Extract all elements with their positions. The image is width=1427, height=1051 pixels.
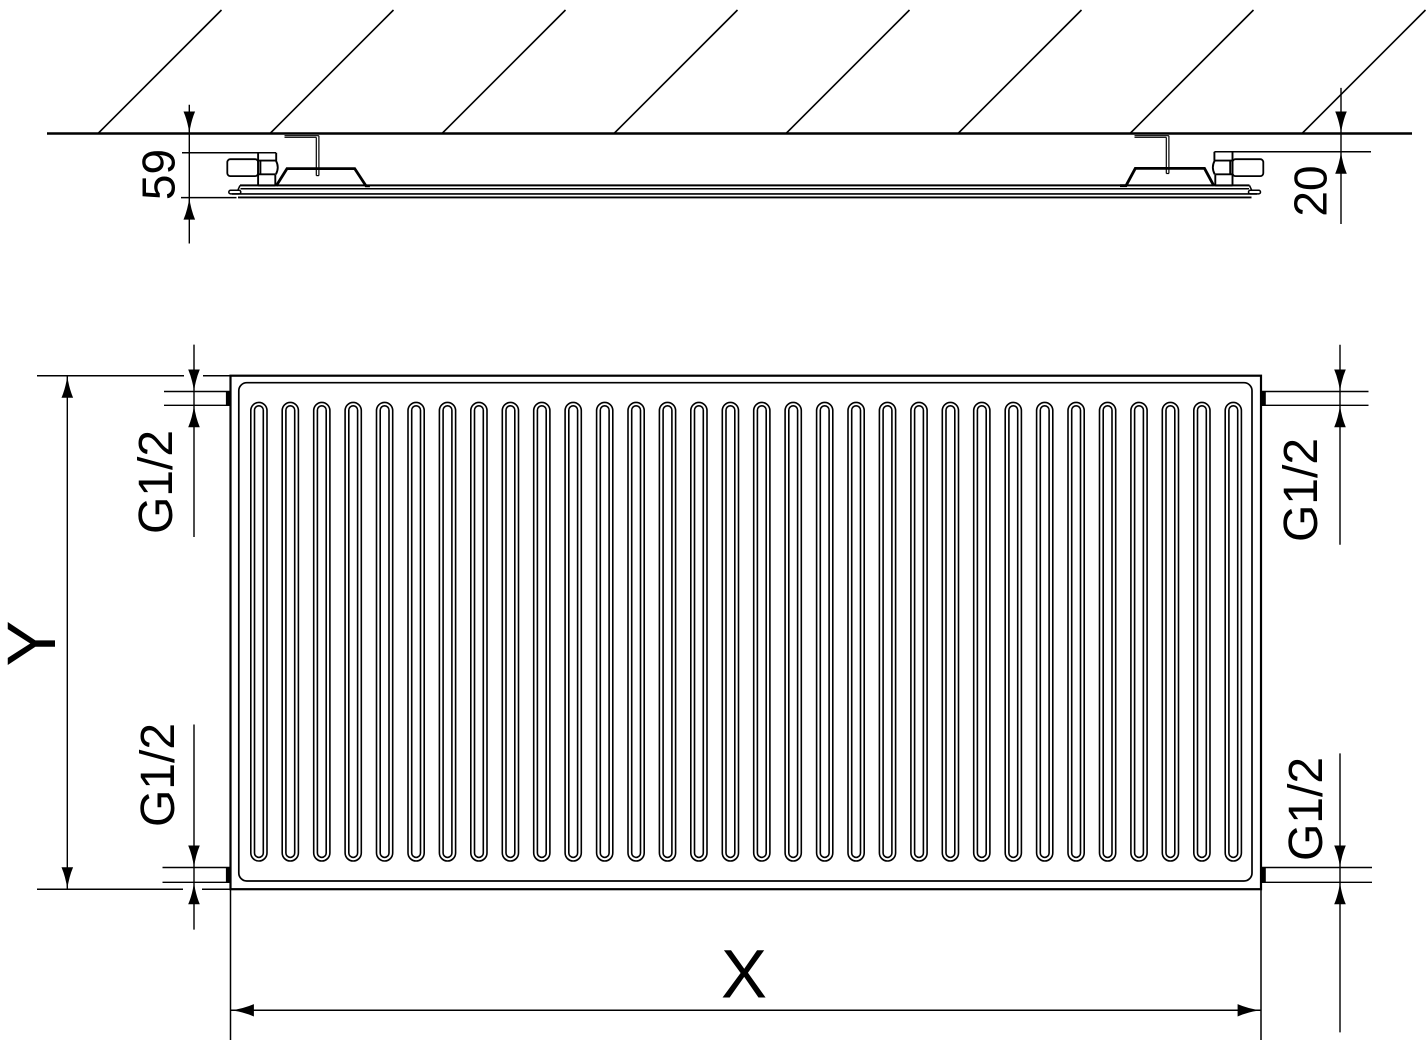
svg-text:G1/2: G1/2 (1280, 757, 1333, 861)
svg-text:59: 59 (133, 149, 185, 200)
svg-text:G1/2: G1/2 (132, 723, 185, 827)
svg-text:20: 20 (1285, 165, 1337, 216)
svg-text:G1/2: G1/2 (1275, 438, 1328, 542)
svg-text:Y: Y (0, 620, 70, 666)
svg-text:G1/2: G1/2 (130, 430, 183, 534)
svg-text:X: X (721, 936, 767, 1013)
